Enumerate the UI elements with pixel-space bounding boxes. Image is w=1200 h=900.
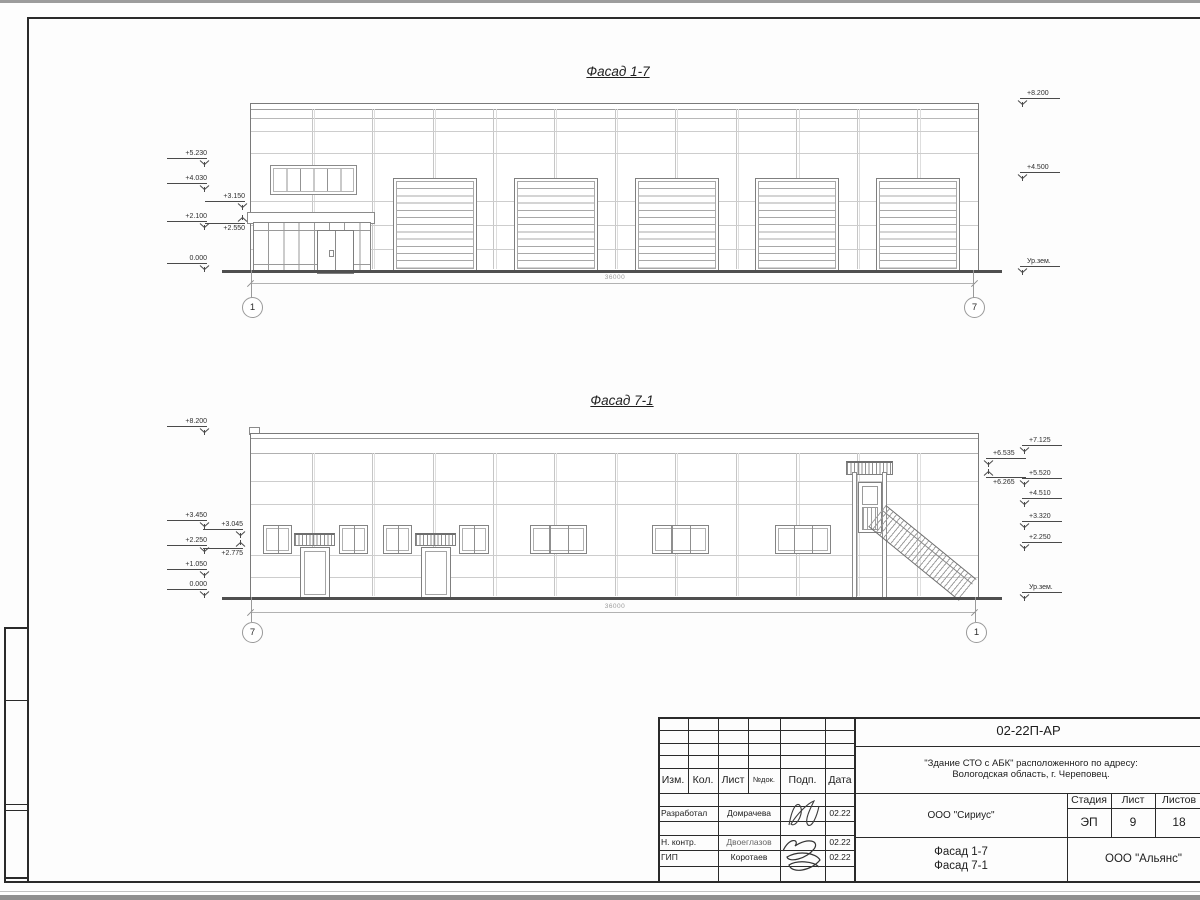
sheet-title: Фасад 1-7 Фасад 7-1 — [855, 837, 1067, 882]
elevation-value: Ур.зем. — [1020, 257, 1060, 267]
title-block-line — [658, 730, 855, 731]
overall-dimension: 36000 — [575, 274, 655, 281]
elevation-arrow-icon — [1020, 593, 1029, 601]
left-stamp-line — [4, 700, 27, 701]
axis-line — [251, 597, 252, 622]
elevation-arrow-icon — [200, 590, 209, 598]
ground-line — [222, 270, 1002, 273]
elevation-value: +3.320 — [1022, 512, 1062, 522]
col-izm: Изм. — [658, 768, 688, 793]
page-edge-top — [0, 0, 1200, 3]
garage-door-slats — [517, 181, 595, 269]
garage-door — [876, 178, 960, 272]
elevation-arrow-icon — [1020, 499, 1029, 507]
window-inner-frame — [655, 528, 706, 551]
axis-bubble: 7 — [242, 622, 263, 643]
overall-dimension: 36000 — [575, 603, 655, 610]
left-stamp-line — [4, 877, 27, 879]
title-block-line — [658, 821, 855, 822]
axis-line — [975, 597, 976, 622]
elevation-value: +2.775 — [203, 548, 243, 558]
window — [263, 525, 292, 554]
entry-door-leaf — [425, 551, 447, 595]
window-inner-frame — [533, 528, 584, 551]
garage-door-slats — [879, 181, 957, 269]
elevation-arrow-icon — [200, 570, 209, 578]
window-mullion — [474, 526, 475, 553]
elevation-arrow-icon — [200, 184, 209, 192]
window-mullion — [278, 526, 279, 553]
entrance-door-stile — [335, 231, 336, 273]
axis-line — [973, 270, 974, 298]
elevation-value: +5.520 — [1022, 469, 1062, 479]
entry-door-leaf — [304, 551, 326, 595]
elevation-value: +3.450 — [167, 511, 207, 521]
stair-door-glass — [862, 486, 878, 505]
elevation-arrow-icon — [236, 540, 245, 548]
frame-top — [27, 17, 1200, 19]
door-canopy — [294, 533, 335, 546]
project-address-line2: Вологодская область, г. Череповец. — [952, 770, 1109, 781]
sheets-label: Листов — [1155, 793, 1200, 808]
left-stamp-line — [4, 627, 27, 629]
elevation-arrow-icon — [200, 427, 209, 435]
client-org: ООО "Альянс" — [1067, 837, 1200, 882]
col-data: Дата — [825, 768, 855, 793]
elevation-value: +4.510 — [1022, 489, 1062, 499]
facade-7-1-building — [250, 433, 979, 599]
entrance-door — [317, 230, 354, 274]
elevation-value: +1.050 — [167, 560, 207, 570]
axis-bubble: 7 — [964, 297, 985, 318]
elevation-value: +4.500 — [1020, 163, 1060, 173]
elevation-arrow-icon — [200, 264, 209, 272]
col-kol: Кол. — [688, 768, 718, 793]
elevation-arrow-icon — [1020, 522, 1029, 530]
elevation-arrow-icon — [1020, 543, 1029, 551]
garage-door — [514, 178, 598, 272]
left-stamp-line — [4, 627, 6, 882]
stage-label: Стадия — [1067, 793, 1111, 808]
drawing-sheet: Фасад 1-7 Фасад 7-1 — [0, 0, 1200, 900]
window-mullion — [549, 526, 550, 553]
row-name: Домрачева — [718, 806, 780, 821]
elevation-value: +3.045 — [203, 520, 243, 530]
garage-door — [393, 178, 477, 272]
window-mullion — [671, 526, 672, 553]
elevation-value: +5.230 — [167, 149, 207, 159]
ribbon-window-panes — [273, 168, 354, 192]
facade-1-7-title: Фасад 1-7 — [548, 64, 688, 79]
panel-joint-v — [738, 109, 739, 269]
elevation-arrow-icon — [238, 202, 247, 210]
elevation-value: Ур.зем. — [1022, 583, 1062, 593]
door-canopy — [415, 533, 456, 546]
entrance-storefront — [253, 222, 371, 273]
elevation-arrow-icon — [984, 459, 993, 467]
window — [383, 525, 412, 554]
page-edge-bottom — [0, 895, 1200, 900]
left-stamp-line — [4, 804, 27, 805]
row-role: Разработал — [661, 806, 718, 821]
dimension-line — [251, 612, 975, 613]
window-inner-frame — [778, 528, 828, 551]
facade-7-1-title: Фасад 7-1 — [552, 393, 692, 408]
elevation-value: +8.200 — [1020, 89, 1060, 99]
elevation-value: +7.125 — [1022, 436, 1062, 446]
doc-number: 02-22П-АР — [855, 717, 1200, 746]
panel-joint-v — [372, 109, 373, 269]
window — [652, 525, 709, 554]
stage-value: ЭП — [1067, 808, 1111, 837]
window-mullion — [794, 526, 795, 553]
elevation-value: +2.250 — [167, 536, 207, 546]
row-date: 02.22 — [825, 806, 855, 821]
panel-joint-h — [251, 131, 978, 132]
ribbon-window — [270, 165, 357, 195]
axis-line — [251, 270, 252, 298]
window — [339, 525, 368, 554]
garage-door — [635, 178, 719, 272]
garage-door-slats — [758, 181, 836, 269]
panel-joint-v — [736, 109, 737, 269]
elevation-arrow-icon — [1018, 99, 1027, 107]
dimension-line — [251, 283, 975, 284]
elevation-arrow-icon — [200, 159, 209, 167]
signature-icon — [779, 833, 827, 881]
stair-tower-post-left — [852, 472, 857, 600]
elevation-value: +2.250 — [1022, 533, 1062, 543]
panel-joint-v — [493, 109, 494, 269]
window-mullion — [568, 526, 569, 553]
window-mullion — [398, 526, 399, 553]
elevation-value: +4.030 — [167, 174, 207, 184]
panel-joint-h — [251, 153, 978, 154]
garage-door — [755, 178, 839, 272]
elevation-arrow-icon — [238, 215, 247, 223]
ground-line — [222, 597, 1002, 600]
panel-joint-v — [615, 109, 616, 269]
col-podp: Подп. — [780, 768, 825, 793]
entry-door — [421, 547, 451, 599]
designer-org: ООО "Сириус" — [855, 794, 1067, 837]
elevation-value: +8.200 — [167, 417, 207, 427]
panel-joint-v — [496, 109, 497, 269]
row-role: ГИП — [661, 850, 718, 866]
panel-joint-v — [617, 109, 618, 269]
row-date: 02.22 — [825, 850, 855, 866]
row-role: Н. контр. — [661, 835, 718, 850]
title-block-line — [658, 743, 855, 744]
window — [459, 525, 489, 554]
elevation-arrow-icon — [1018, 267, 1027, 275]
page-edge-bottom-line — [0, 891, 1200, 892]
elevation-arrow-icon — [1018, 173, 1027, 181]
elevation-value: +6.265 — [986, 477, 1026, 487]
elevation-value: +2.550 — [205, 223, 245, 233]
row-name: Двоеглазов — [718, 835, 780, 850]
axis-bubble: 1 — [966, 622, 987, 643]
door-handle — [329, 250, 334, 257]
sheet-number: 9 — [1111, 808, 1155, 837]
project-address: "Здание СТО с АБК" расположенного по адр… — [865, 747, 1197, 793]
title-block-line — [658, 717, 660, 882]
window — [775, 525, 831, 554]
window-mullion — [812, 526, 813, 553]
sheets-total: 18 — [1155, 808, 1200, 837]
elevation-value: +3.150 — [205, 192, 245, 202]
sheet-title-line2: Фасад 7-1 — [934, 860, 988, 873]
elevation-arrow-icon — [236, 530, 245, 538]
garage-door-slats — [396, 181, 474, 269]
elevation-value: 0.000 — [167, 254, 207, 264]
elevation-value: 0.000 — [167, 580, 207, 590]
row-date: 02.22 — [825, 835, 855, 850]
window — [530, 525, 587, 554]
axis-bubble: 1 — [242, 297, 263, 318]
window-mullion — [690, 526, 691, 553]
panel-joint-h — [251, 201, 978, 202]
sheet-label: Лист — [1111, 793, 1155, 808]
garage-door-slats — [638, 181, 716, 269]
panel-joint-v — [857, 109, 858, 269]
title-block-line — [658, 755, 855, 756]
left-stamp-line — [4, 810, 27, 811]
elevation-value: +2.100 — [167, 212, 207, 222]
facade-1-7-building — [250, 103, 979, 272]
frame-left — [27, 17, 29, 882]
entry-door — [300, 547, 330, 599]
elevation-value: +6.535 — [986, 449, 1026, 459]
row-name: Коротаев — [718, 850, 780, 866]
window-mullion — [354, 526, 355, 553]
elevation-arrow-icon — [984, 469, 993, 477]
col-ndok: №док. — [748, 768, 780, 793]
panel-joint-v — [859, 109, 860, 269]
col-list: Лист — [718, 768, 748, 793]
sheet-title-line1: Фасад 1-7 — [934, 846, 988, 859]
signature-icon — [784, 795, 824, 835]
panel-joint-v — [374, 109, 375, 269]
